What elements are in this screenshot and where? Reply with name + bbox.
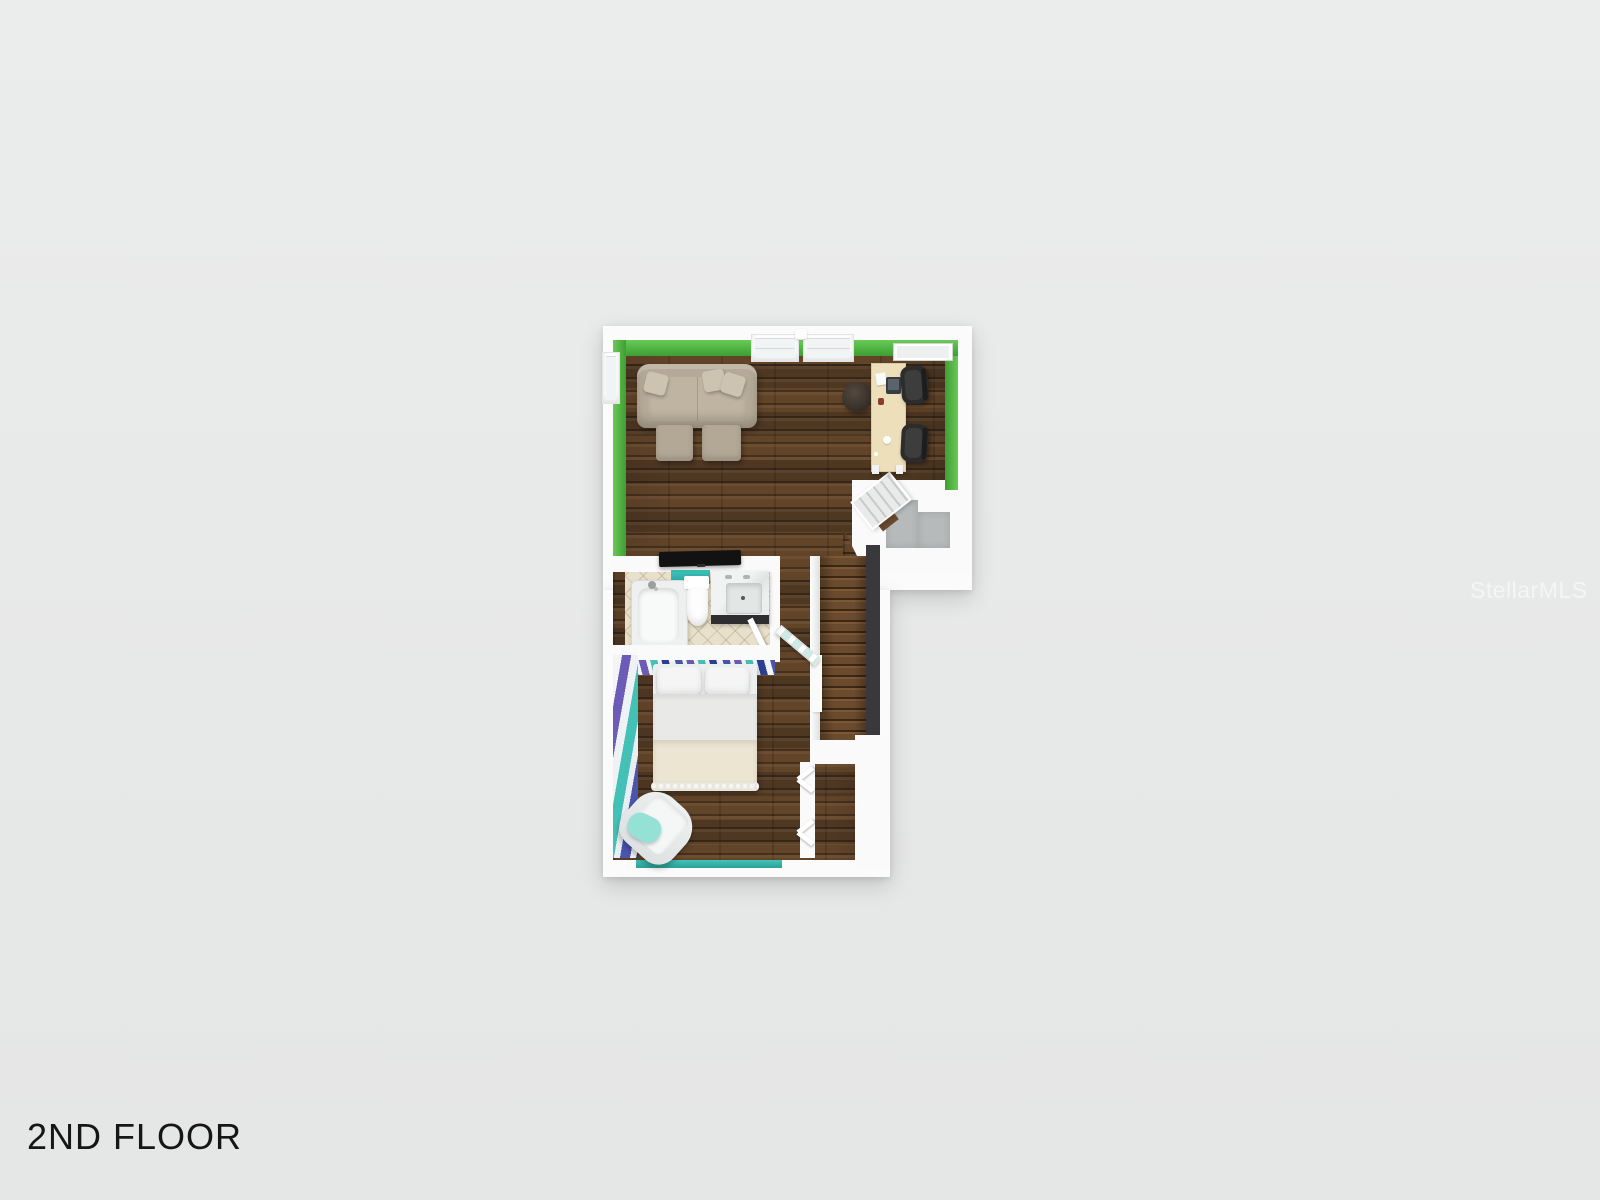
window-mullion — [795, 329, 807, 339]
ottoman — [702, 425, 741, 461]
bed-pillow — [705, 666, 750, 696]
sectional-sofa — [637, 364, 757, 428]
bifold-closet-door — [796, 762, 816, 796]
window-left-wall — [602, 352, 620, 404]
desk-monitor — [886, 377, 901, 394]
toilet-bowl — [687, 588, 708, 626]
desk-leg — [896, 465, 903, 474]
bifold-closet-door — [796, 815, 816, 849]
tv-console — [659, 550, 741, 567]
vanity-front-edge — [711, 615, 769, 624]
floor-plan — [600, 325, 975, 878]
shower-head — [648, 581, 656, 589]
sink-drain — [741, 596, 745, 600]
background: StellarMLS 2ND FLOOR — [0, 0, 1600, 1200]
watermark: StellarMLS — [1470, 577, 1590, 604]
staircase-treads — [820, 556, 868, 756]
faucet — [743, 575, 750, 579]
desk-item — [874, 452, 878, 456]
bed-pillow — [657, 666, 702, 696]
green-wall-right — [945, 356, 958, 490]
double-bed — [653, 664, 757, 790]
desk-leg — [872, 465, 879, 474]
stair-side-wall — [866, 545, 880, 756]
bathtub — [631, 580, 688, 652]
landing-rug — [918, 512, 950, 548]
bed-duvet — [653, 694, 757, 740]
desk-mug — [878, 398, 884, 405]
bathtub-basin — [638, 588, 679, 643]
vanity-sink — [711, 571, 769, 624]
floor-label: 2ND FLOOR — [27, 1116, 242, 1158]
bed-blanket — [653, 740, 757, 782]
office-chair — [900, 365, 930, 405]
window-top-right-unit — [803, 334, 854, 362]
bed-ruffle-edge — [651, 782, 759, 791]
round-pouf — [842, 382, 872, 412]
desk-plate — [883, 436, 891, 444]
ottoman — [656, 425, 693, 461]
faucet — [725, 575, 732, 579]
wall-panel — [893, 343, 953, 361]
window-top-left-unit — [751, 334, 799, 362]
office-chair — [900, 423, 929, 462]
closet-east-wall — [855, 735, 890, 868]
closet-north-wall — [810, 740, 857, 762]
